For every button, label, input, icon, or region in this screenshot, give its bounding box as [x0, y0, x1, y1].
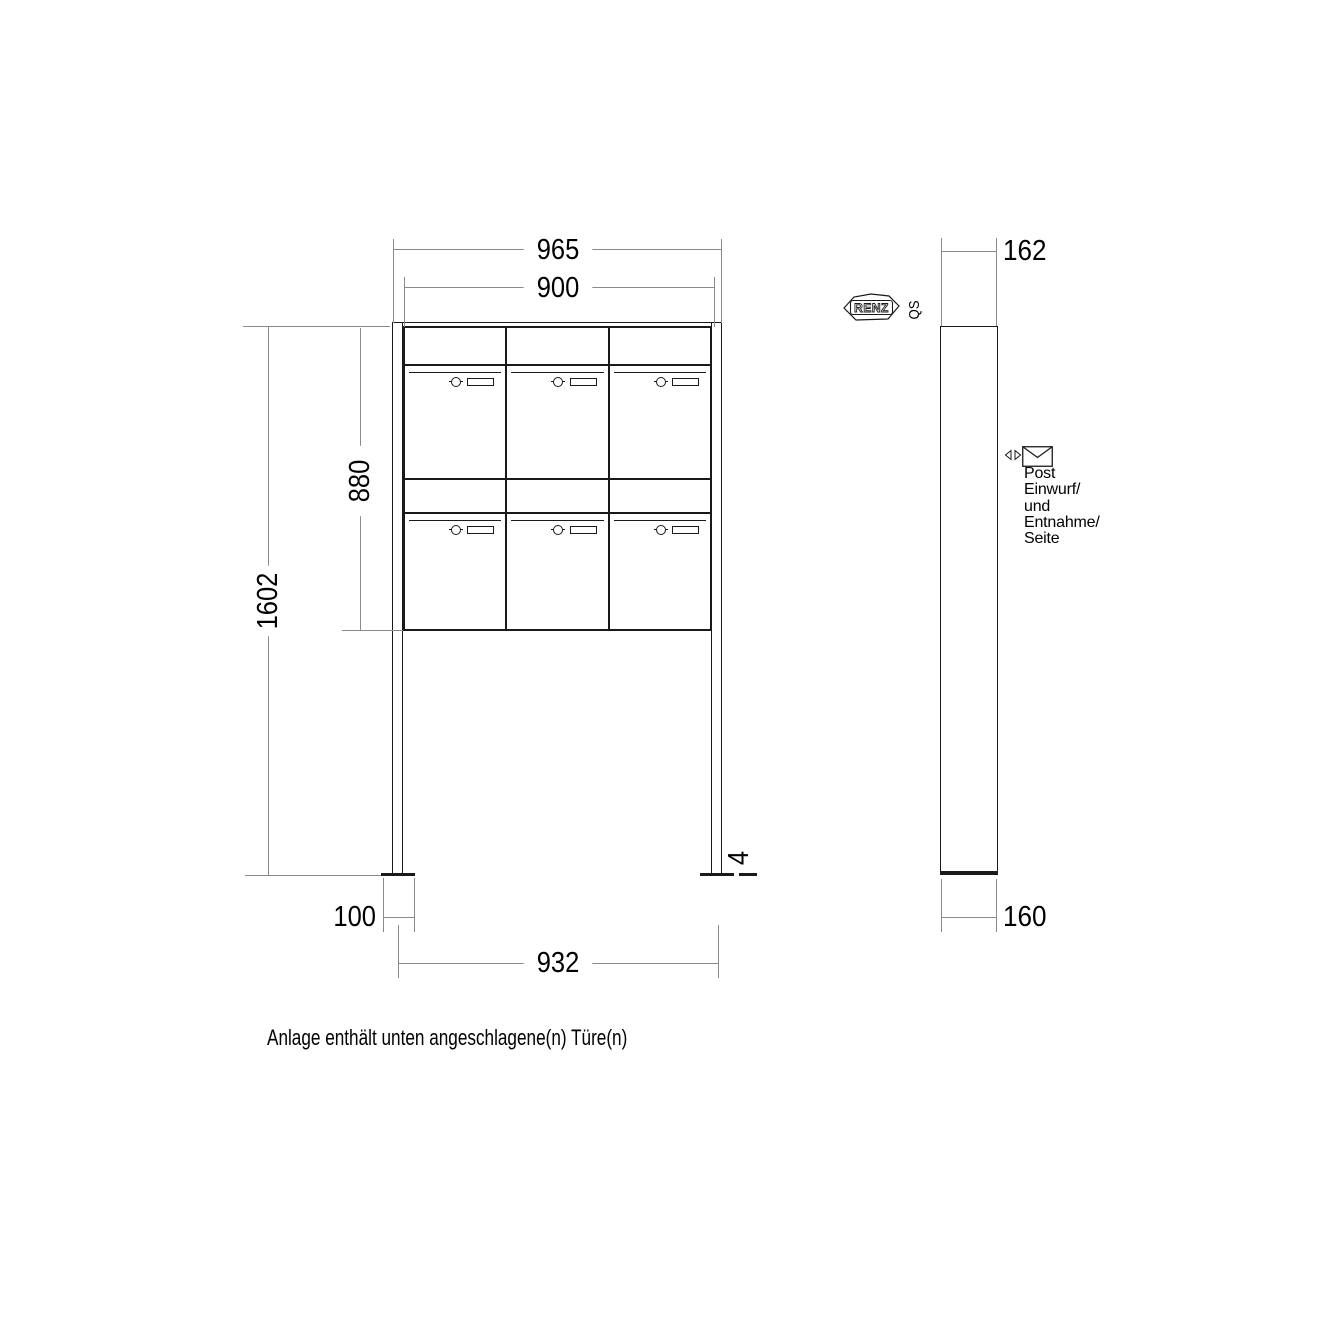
extension-line [414, 878, 415, 932]
mailbox-door-lower-2 [507, 514, 607, 629]
lock-icon [553, 525, 563, 535]
name-plate [570, 378, 597, 386]
left-right-arrow-icon [1004, 448, 1022, 460]
extension-line [243, 326, 390, 327]
svg-text:RENZ: RENZ [854, 301, 889, 315]
side-view-body [940, 326, 998, 875]
lock-icon [656, 525, 666, 535]
technical-drawing-canvas: 965 900 1602 880 4 100 932 162 160 RENZ … [0, 0, 1320, 1320]
extension-line [721, 239, 722, 323]
extension-line [393, 239, 394, 323]
support-post-left [392, 322, 403, 875]
dimension-value-foot-width: 100 [307, 903, 376, 931]
dimension-value-body-height: 880 [346, 446, 374, 516]
mailbox-door-lower-3 [610, 514, 710, 629]
qs-mark: QS [901, 276, 929, 345]
mailbox-door-lower-1 [405, 514, 505, 629]
blank-panel-middle [610, 478, 710, 514]
side-view-base-plate [940, 871, 998, 875]
mail-slot-line [511, 520, 603, 521]
dimension-line-162 [941, 251, 997, 252]
extension-line [404, 277, 405, 327]
mail-slot-line [614, 520, 706, 521]
service-label-line: Einwurf/ [1024, 482, 1100, 498]
dimension-value-outer-width: 965 [524, 236, 593, 264]
mailbox-door-upper-3 [610, 366, 710, 478]
service-label: Post Einwurf/ und Entnahme/ Seite [1024, 466, 1100, 547]
service-label-line: Entnahme/ [1024, 515, 1100, 531]
mailbox-door-upper-1 [405, 366, 505, 478]
mailbox-column-1 [405, 328, 507, 629]
dimension-line-100 [383, 917, 415, 918]
renz-logo: RENZ [843, 291, 900, 324]
dimension-line-160 [941, 917, 997, 918]
extension-line [941, 879, 942, 932]
mailbox-column-2 [507, 328, 609, 629]
extension-line [718, 925, 719, 978]
name-plate [672, 378, 699, 386]
service-label-line: Post [1024, 466, 1100, 482]
support-post-right [711, 322, 722, 875]
dimension-value-foot-spacing: 932 [524, 949, 593, 977]
base-plate-left [381, 873, 415, 876]
name-plate [570, 526, 597, 534]
extension-line [398, 925, 399, 978]
mail-slot-line [409, 520, 501, 521]
blank-panel-top [405, 328, 505, 366]
blank-panel-middle [405, 478, 505, 514]
mailbox-column-3 [610, 328, 710, 629]
lock-icon [451, 377, 461, 387]
blank-panel-top [507, 328, 607, 366]
extension-line [996, 879, 997, 932]
extension-line [714, 277, 715, 327]
service-label-line: und [1024, 499, 1100, 515]
mailbox-cabinet [403, 326, 712, 631]
blank-panel-middle [507, 478, 607, 514]
dimension-value-total-height: 1602 [254, 566, 282, 636]
ground-line [245, 875, 381, 876]
roof-top-line [392, 322, 722, 323]
lock-icon [553, 377, 563, 387]
mail-slot-line [614, 372, 706, 373]
dimension-value-body-width: 900 [524, 274, 593, 302]
name-plate [467, 378, 494, 386]
mailbox-door-upper-2 [507, 366, 607, 478]
dimension-value-top-depth: 162 [1003, 237, 1066, 265]
dimension-value-baseplate-gap: 4 [725, 823, 753, 893]
extension-line [383, 878, 384, 932]
envelope-icon [1022, 446, 1053, 467]
lock-icon [451, 525, 461, 535]
name-plate [467, 526, 494, 534]
lock-icon [656, 377, 666, 387]
blank-panel-top [610, 328, 710, 366]
name-plate [672, 526, 699, 534]
mail-slot-line [409, 372, 501, 373]
mail-slot-line [511, 372, 603, 373]
extension-line [342, 630, 403, 631]
dimension-value-bottom-depth: 160 [1003, 903, 1066, 931]
note-text: Anlage enthält unten angeschlagene(n) Tü… [267, 1026, 627, 1050]
service-label-line: Seite [1024, 531, 1100, 547]
